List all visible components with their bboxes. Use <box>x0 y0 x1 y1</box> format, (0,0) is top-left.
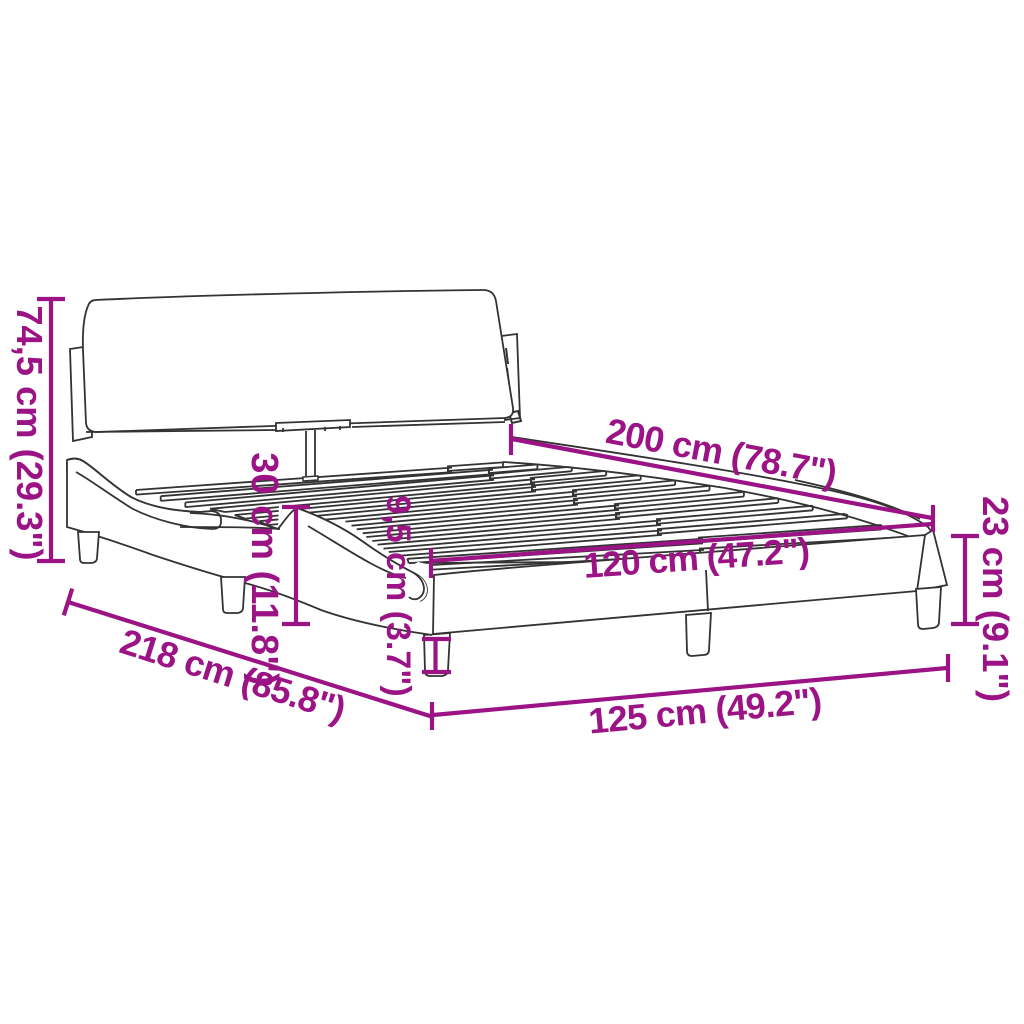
svg-text:23 cm (9.1"): 23 cm (9.1") <box>975 496 1016 702</box>
svg-text:218 cm (85.8"): 218 cm (85.8") <box>115 620 350 729</box>
svg-text:9,5 cm (3.7"): 9,5 cm (3.7") <box>379 495 417 696</box>
svg-text:74,5 cm (29.3"): 74,5 cm (29.3") <box>9 305 50 560</box>
svg-text:30 cm (11.8"): 30 cm (11.8") <box>243 452 285 686</box>
